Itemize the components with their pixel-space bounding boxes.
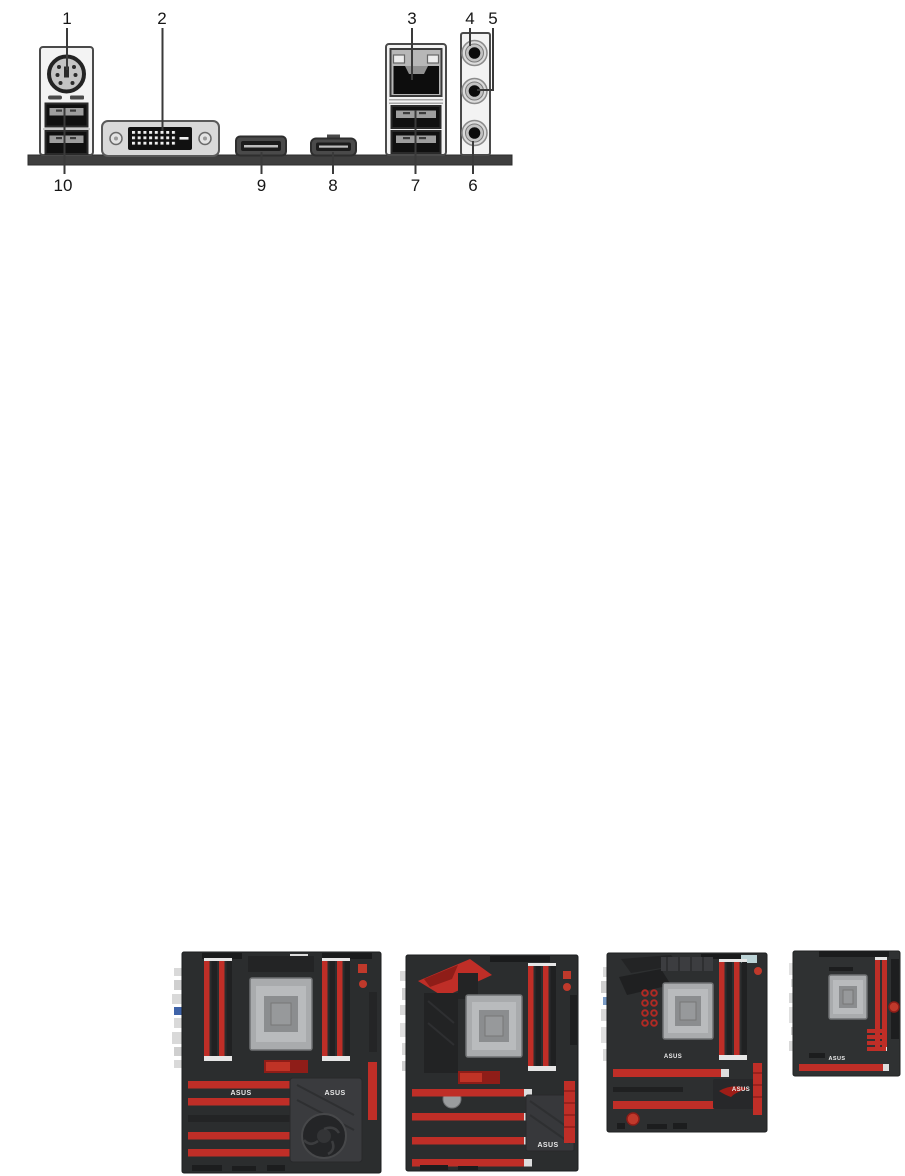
rog-button [889, 1002, 899, 1012]
asus-logo: ASUS [537, 1142, 558, 1149]
reset-button [563, 983, 571, 991]
mic-jack [462, 121, 487, 146]
red-heatsink [564, 1081, 575, 1143]
rear-io-diagram: 1 2 3 4 5 10 9 8 7 6 [0, 0, 540, 210]
chipset-heatsink: ASUS [290, 1078, 362, 1162]
mouse-icon [48, 96, 62, 100]
callout-3: 3 [407, 9, 416, 28]
callout-8: 8 [328, 176, 337, 195]
lan-led [394, 55, 405, 63]
rog-badge [458, 1071, 500, 1084]
callout-6: 6 [468, 176, 477, 195]
red-heatsink [368, 1062, 377, 1120]
cpu-socket [250, 978, 312, 1050]
asus-logo: ASUS [664, 1054, 682, 1060]
audio-jack-block [461, 33, 490, 155]
ethernet-port [391, 49, 442, 96]
asus-logo: ASUS [732, 1087, 750, 1093]
asus-logo: ASUS [324, 1090, 345, 1097]
motherboard-matx-image: ASUS ASUS [601, 951, 771, 1134]
callout-7: 7 [411, 176, 420, 195]
callout-5: 5 [488, 9, 497, 28]
pcie-slot [799, 1064, 889, 1071]
rog-badge [264, 1060, 308, 1073]
lan-led [428, 55, 439, 63]
cpu-socket [829, 975, 867, 1019]
manual-page: 1 2 3 4 5 10 9 8 7 6 [0, 0, 905, 1176]
callout-2: 2 [157, 9, 166, 28]
rog-emblem: ASUS [713, 1079, 759, 1109]
motherboard-itx-image: ASUS [789, 949, 904, 1080]
power-button [627, 1113, 639, 1125]
callout-4: 4 [465, 9, 474, 28]
usb-port [46, 104, 88, 127]
power-button [358, 964, 367, 973]
cpu-socket [663, 983, 713, 1039]
red-heatsink [753, 1063, 762, 1115]
motherboard-atx-image: ASUS [400, 953, 582, 1173]
cpu-socket [466, 995, 522, 1057]
keyboard-icon [70, 96, 84, 100]
asus-logo: ASUS [230, 1090, 251, 1097]
reset-button [359, 980, 367, 988]
callout-9: 9 [257, 176, 266, 195]
asus-logo: ASUS [829, 1056, 846, 1062]
reset-button [754, 967, 762, 975]
callout-10: 10 [54, 176, 73, 195]
callout-1: 1 [62, 9, 71, 28]
dvi-port [102, 121, 219, 156]
usb-port [46, 131, 88, 154]
line-in-jack [462, 41, 487, 66]
motherboard-eatx-image: ASUS ASUS [172, 950, 385, 1175]
power-button [563, 971, 571, 979]
